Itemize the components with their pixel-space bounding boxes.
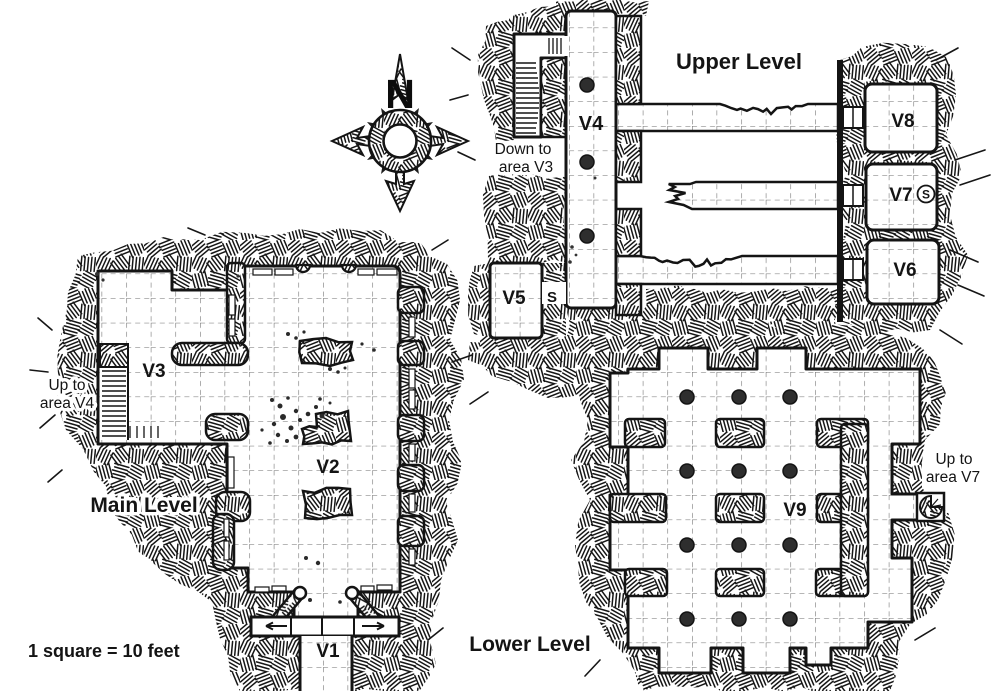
svg-text:Up to: Up to	[48, 377, 85, 394]
svg-text:Upper Level: Upper Level	[676, 49, 802, 74]
svg-text:Main Level: Main Level	[90, 494, 197, 517]
svg-text:area V7: area V7	[926, 469, 980, 486]
svg-text:N: N	[385, 71, 415, 117]
svg-text:Down to: Down to	[495, 141, 552, 158]
svg-text:V1: V1	[316, 641, 340, 662]
svg-text:V4: V4	[579, 113, 604, 135]
svg-text:V6: V6	[893, 260, 916, 281]
svg-text:Lower Level: Lower Level	[469, 633, 590, 656]
svg-text:area V3: area V3	[499, 159, 553, 176]
svg-text:S: S	[922, 188, 930, 202]
svg-text:V9: V9	[783, 500, 806, 521]
svg-text:area V4: area V4	[40, 395, 95, 412]
svg-text:Up to: Up to	[935, 451, 972, 468]
svg-text:V3: V3	[142, 361, 165, 382]
svg-text:1 square = 10 feet: 1 square = 10 feet	[28, 641, 180, 661]
svg-text:V5: V5	[502, 288, 526, 309]
svg-text:S: S	[547, 289, 557, 306]
svg-text:V2: V2	[316, 457, 339, 478]
svg-text:V8: V8	[891, 111, 914, 132]
svg-text:V7: V7	[889, 185, 912, 206]
